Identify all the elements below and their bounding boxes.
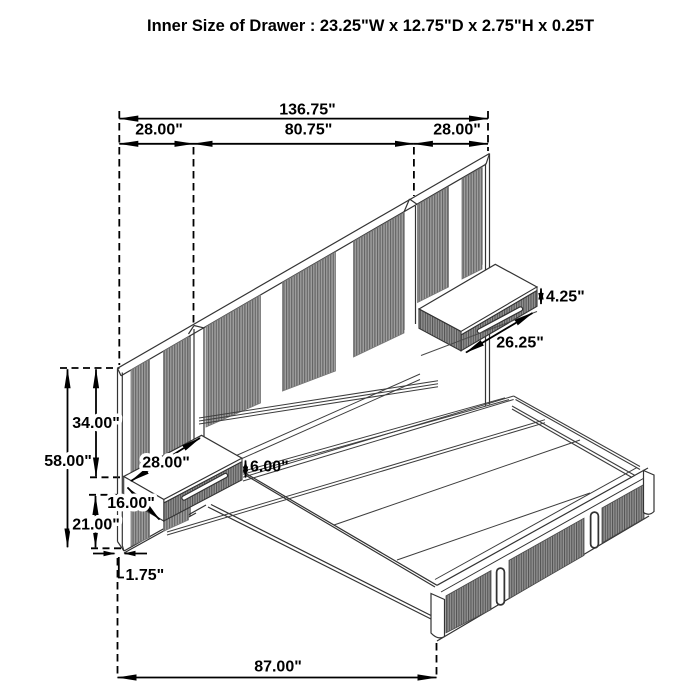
- svg-text:16.00": 16.00": [107, 495, 155, 512]
- svg-text:4.25": 4.25": [546, 289, 585, 306]
- svg-text:87.00": 87.00": [254, 659, 302, 676]
- svg-text:28.00": 28.00": [142, 455, 190, 472]
- svg-text:21.00": 21.00": [72, 517, 120, 534]
- svg-text:26.25": 26.25": [496, 335, 544, 352]
- svg-text:58.00": 58.00": [44, 453, 92, 470]
- svg-text:136.75": 136.75": [279, 102, 336, 119]
- svg-text:28.00": 28.00": [135, 122, 183, 139]
- svg-text:80.75": 80.75": [285, 122, 333, 139]
- svg-text:34.00": 34.00": [72, 415, 120, 432]
- svg-text:1.75": 1.75": [126, 567, 165, 584]
- svg-text:Inner Size of Drawer : 23.25"W: Inner Size of Drawer : 23.25"W x 12.75"D…: [147, 17, 594, 35]
- svg-text:28.00": 28.00": [433, 122, 481, 139]
- svg-text:6.00": 6.00": [250, 459, 289, 476]
